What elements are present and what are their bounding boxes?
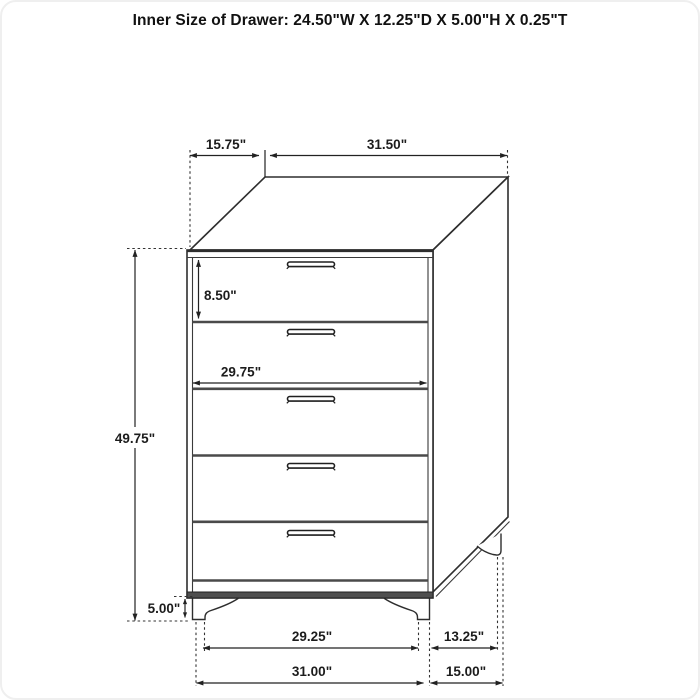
chest-drawing — [187, 177, 510, 620]
dim-base-depth-label: 15.00" — [446, 664, 486, 679]
dim-base-inner-depth-label: 13.25" — [444, 629, 484, 644]
chest-base-band — [187, 592, 433, 598]
dim-base-inner-width-label: 29.25" — [292, 629, 332, 644]
dim-overall-height: 49.75" — [108, 249, 190, 622]
dim-leg-height: 5.00" — [148, 597, 193, 618]
chest-side-panel — [433, 177, 508, 592]
dim-top-width-label: 31.50" — [367, 137, 407, 152]
dim-inner-width-label: 29.75" — [221, 365, 261, 380]
chest-front-right-leg — [385, 596, 430, 620]
dim-base-width-label: 31.00" — [292, 664, 332, 679]
chest-front-left-leg — [193, 596, 239, 620]
dim-top-width: 31.50" — [270, 137, 508, 175]
dim-base-depth: 15.00" — [431, 664, 503, 683]
dim-base-width: 31.00" — [197, 664, 424, 683]
dim-overall-height-label: 49.75" — [115, 431, 155, 446]
dim-first-drawer-height-label: 8.50" — [204, 288, 237, 303]
dim-top-depth-label: 15.75" — [206, 137, 246, 152]
dim-base-inner-depth: 13.25" — [432, 629, 498, 648]
dim-leg-height-label: 5.00" — [148, 601, 181, 616]
dim-base-inner-width: 29.25" — [203, 629, 418, 648]
dimension-diagram: 15.75" 31.50" 8.50" 29.75" 49.75" 5.00" — [0, 0, 700, 700]
